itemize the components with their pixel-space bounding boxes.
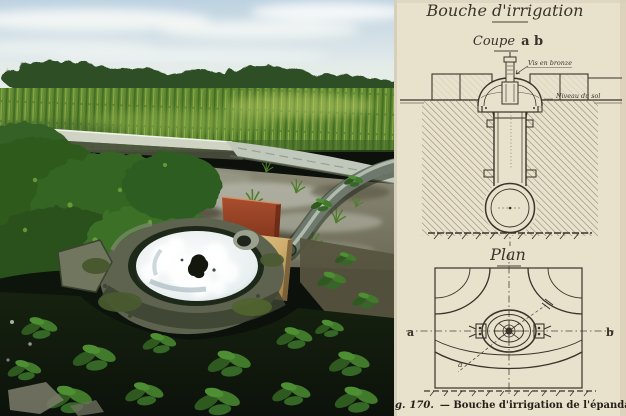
bouche-irrigation-diagram: Bouche d'irrigation Coupea b — [394, 0, 626, 416]
coupe-label: Coupea b — [473, 34, 543, 49]
bronze-screw — [504, 52, 516, 82]
figure-caption: g.170.— Bouche d'irrigation de l'épandag… — [395, 400, 626, 411]
ground-level-annotation: Niveau du sol — [555, 92, 600, 100]
screw-annotation: Vis en bronze — [528, 59, 572, 67]
plan-marker-diagonal: a — [458, 360, 462, 369]
composite-figure: Bouche d'irrigation Coupea b — [0, 0, 626, 416]
irrigation-photo — [0, 0, 394, 416]
bouche-irrigation-diagram-panel: Bouche d'irrigation Coupea b — [394, 0, 626, 416]
plan-marker-a: a — [407, 326, 414, 339]
diagram-title: Bouche d'irrigation — [426, 1, 584, 20]
irrigation-photo-panel — [0, 0, 394, 416]
plan-label: Plan — [489, 245, 526, 264]
plan-marker-b: b — [606, 326, 614, 339]
